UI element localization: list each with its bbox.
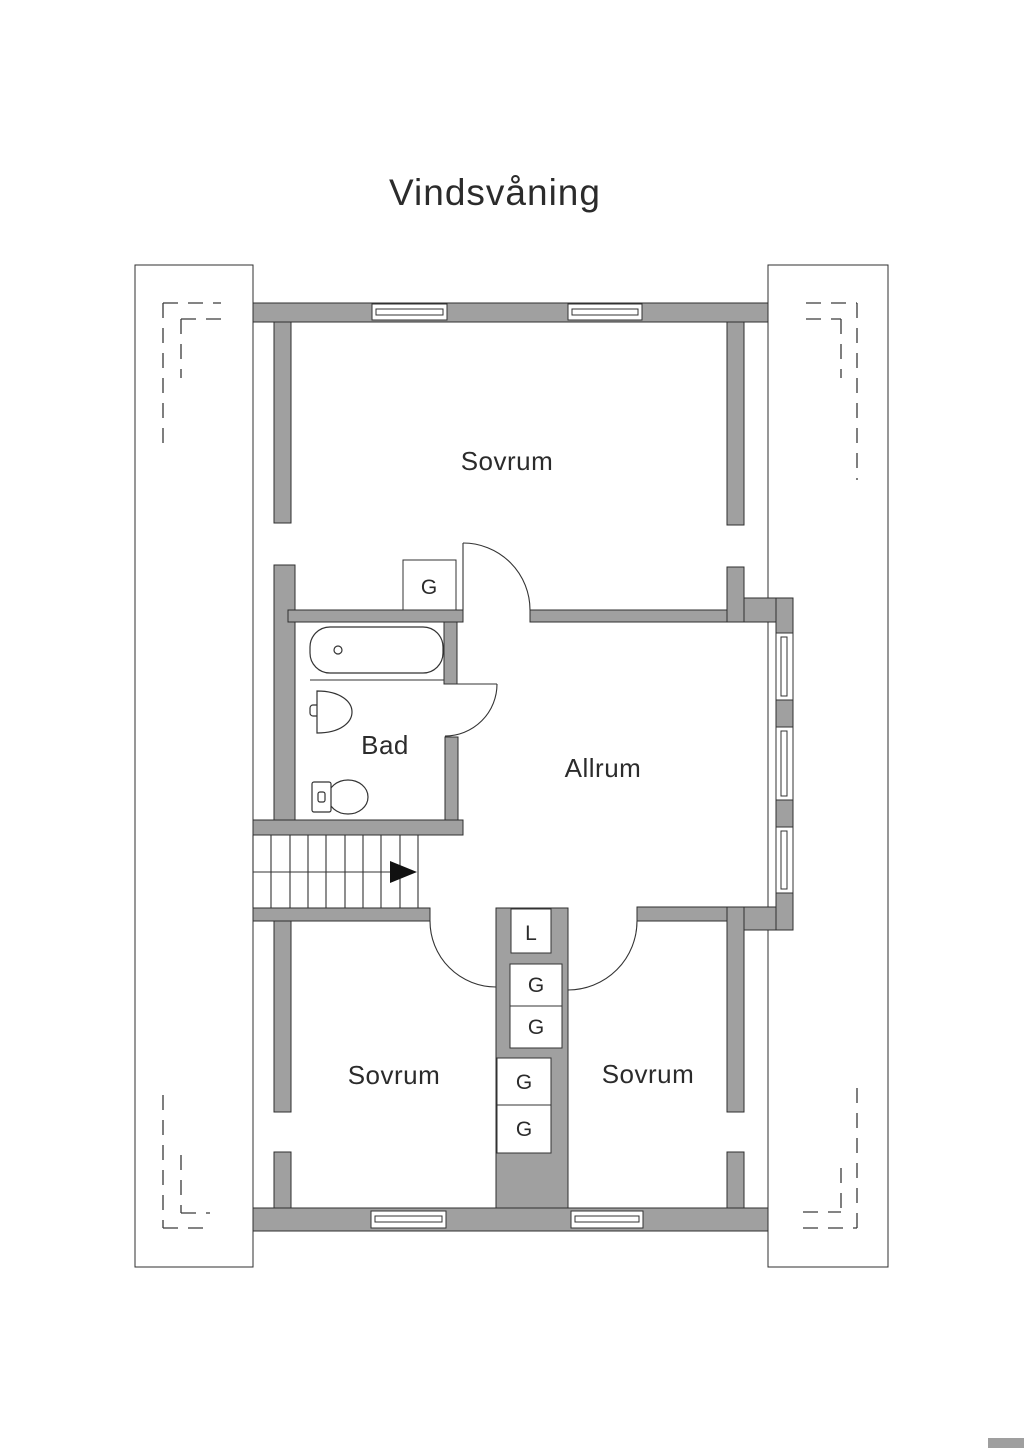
wall-east-step: [727, 567, 744, 622]
wall-west-knee-lowest: [274, 1152, 291, 1210]
window: [571, 1211, 643, 1228]
room-label-sovrum-top: Sovrum: [461, 446, 554, 476]
wall-stair-south: [253, 908, 430, 921]
toilet: [312, 780, 368, 814]
room-label-sovrum-bottom-left: Sovrum: [348, 1060, 441, 1090]
bathtub: [310, 627, 444, 680]
wall-bath-east-lower: [445, 737, 458, 822]
wall-sovrum-south-right: [530, 610, 727, 622]
wall-east-knee-lowest: [727, 1152, 744, 1212]
wall-sovrum-south-left: [288, 610, 463, 622]
closet-label: G: [516, 1118, 532, 1141]
window: [568, 304, 642, 320]
window: [371, 1211, 446, 1228]
wall-top: [253, 303, 768, 322]
closet-label: G: [528, 974, 544, 997]
closet-label: G: [528, 1016, 544, 1039]
wall-bottom: [253, 1208, 768, 1231]
room-label-sovrum-bottom-right: Sovrum: [602, 1059, 695, 1089]
window: [372, 304, 447, 320]
wall-east-knee-upper: [727, 322, 744, 525]
corner-fragment: [988, 1438, 1024, 1448]
room-label-bad: Bad: [361, 730, 409, 760]
wall-west-knee-lower: [274, 921, 291, 1112]
wall-east-knee-lower: [727, 907, 744, 1112]
page-title: Vindsvåning: [389, 172, 601, 213]
closet-label: G: [516, 1071, 532, 1094]
floor-plan: Vindsvåning: [0, 0, 1024, 1448]
closet-label: L: [525, 922, 537, 945]
wall-west-knee-upper: [274, 322, 291, 523]
wall-bath-east-upper: [444, 622, 457, 684]
window: [776, 727, 793, 800]
closet-label: G: [421, 576, 437, 599]
window: [776, 827, 793, 893]
wall-bath-south: [253, 820, 463, 835]
roof-outline-left: [135, 265, 253, 1267]
room-label-allrum: Allrum: [565, 753, 642, 783]
window: [776, 633, 793, 700]
wall-west-mid: [274, 565, 295, 835]
